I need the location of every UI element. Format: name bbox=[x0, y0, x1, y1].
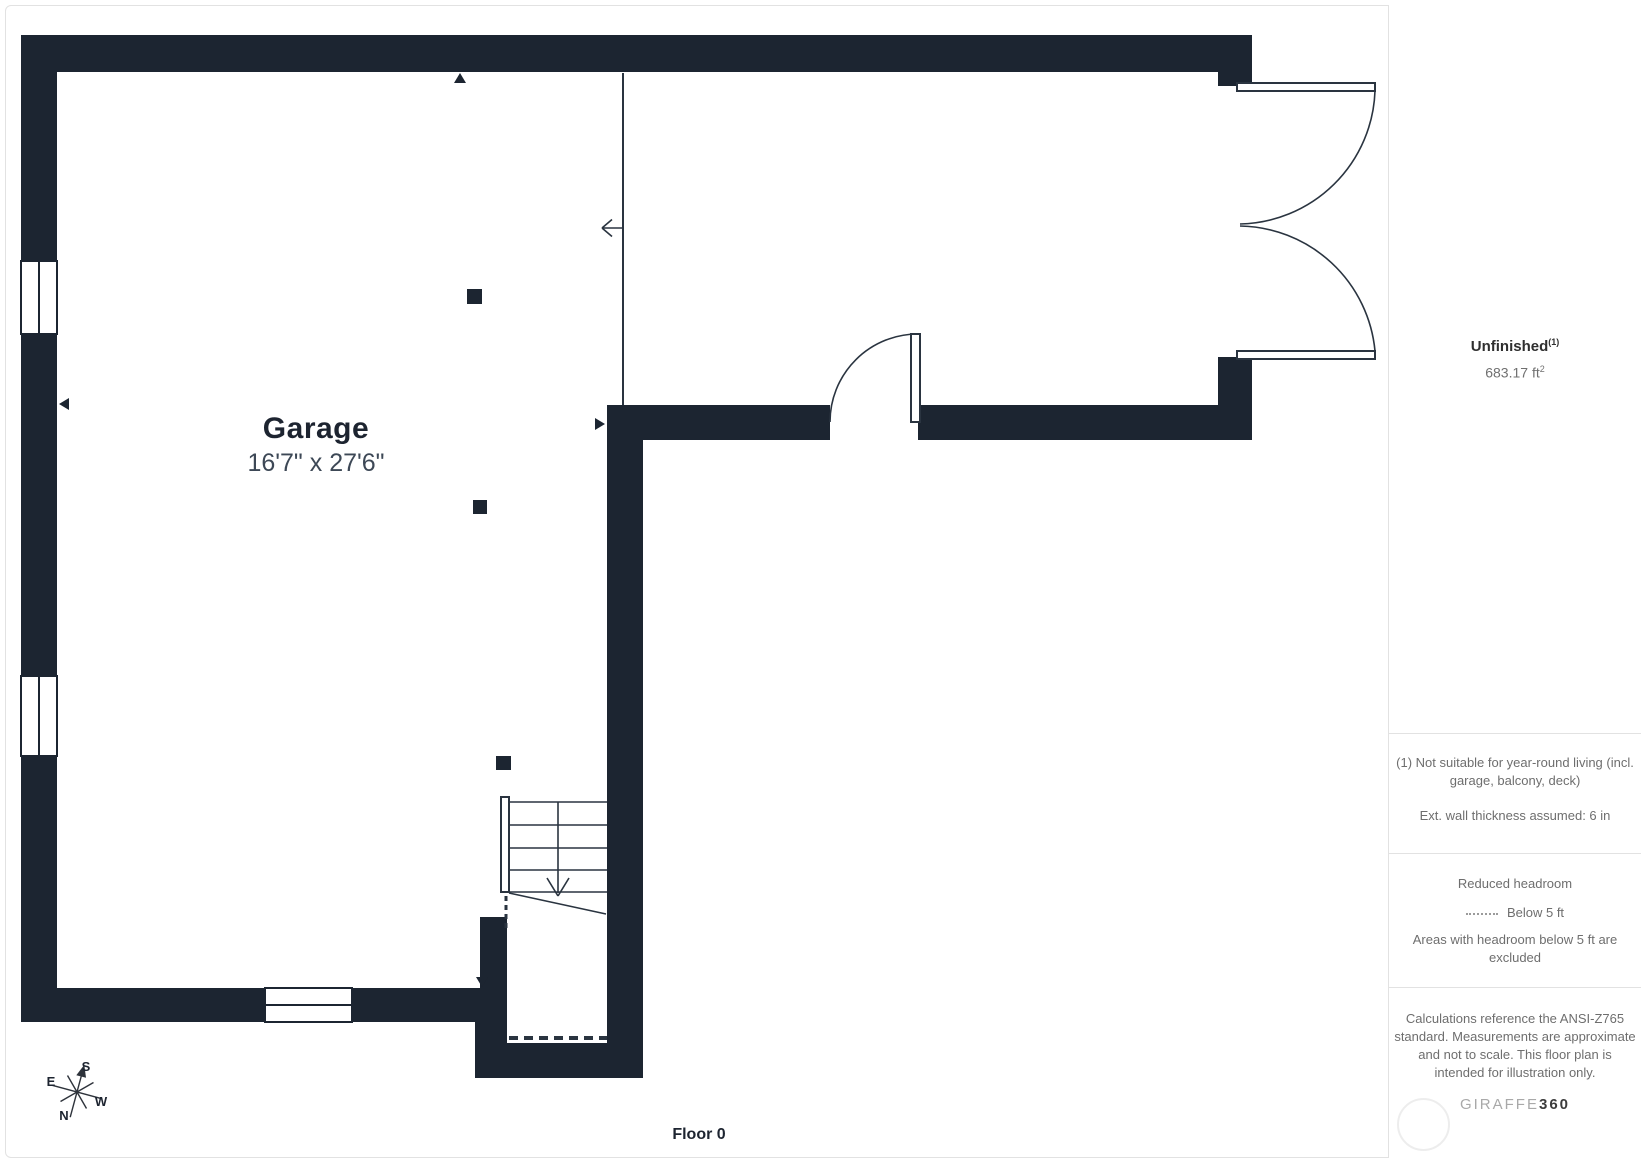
area-name: Unfinished(1) bbox=[1471, 337, 1560, 355]
stair-stringer bbox=[501, 797, 509, 892]
area-value-text: 683.17 ft bbox=[1485, 365, 1540, 381]
compass-south-label: S bbox=[79, 1059, 93, 1074]
giraffe360-logo: GIRAFFE360 bbox=[1389, 1096, 1641, 1113]
window-west-1 bbox=[21, 261, 57, 334]
floor-label: Floor 0 bbox=[672, 1126, 725, 1144]
wall-interior-vertical bbox=[607, 405, 643, 1078]
door-swing-arc-top bbox=[1240, 91, 1375, 224]
stair-direction-arrow bbox=[547, 878, 558, 896]
logo-text-giraffe: GIRAFFE bbox=[1460, 1096, 1539, 1113]
door-leaf bbox=[911, 334, 920, 422]
dotted-line-legend-icon bbox=[1466, 913, 1498, 915]
area-value-exponent: 2 bbox=[1540, 364, 1545, 374]
area-name-text: Unfinished bbox=[1471, 338, 1549, 355]
disclaimer-text: Calculations reference the ANSI-Z765 sta… bbox=[1393, 1010, 1637, 1082]
stair-direction-arrow bbox=[558, 878, 569, 896]
wall-thickness-note: Ext. wall thickness assumed: 6 in bbox=[1389, 807, 1641, 825]
disclaimer-section: Calculations reference the ANSI-Z765 sta… bbox=[1389, 987, 1641, 1158]
wall-south-garage bbox=[21, 988, 475, 1022]
headroom-legend-label: Below 5 ft bbox=[1507, 905, 1564, 920]
room-dimensions: 16'7" x 27'6" bbox=[247, 449, 384, 478]
post bbox=[473, 500, 487, 514]
double-door-east bbox=[1237, 83, 1375, 359]
headroom-description: Areas with headroom below 5 ft are exclu… bbox=[1394, 931, 1636, 967]
post bbox=[496, 756, 511, 770]
compass-east-label: E bbox=[44, 1074, 58, 1089]
compass-north-label: N bbox=[57, 1108, 71, 1123]
door-leaf-top bbox=[1237, 83, 1375, 91]
footnotes-section: (1) Not suitable for year-round living (… bbox=[1389, 733, 1641, 853]
wall-north bbox=[21, 35, 1252, 72]
wall-west bbox=[21, 35, 57, 1022]
window-west-2 bbox=[21, 676, 57, 756]
area-value: 683.17 ft2 bbox=[1485, 364, 1545, 381]
interior-door bbox=[830, 334, 920, 422]
door-leaf-bottom bbox=[1237, 351, 1375, 359]
staircase bbox=[501, 797, 607, 1038]
area-footnote-marker: (1) bbox=[1548, 337, 1559, 347]
measure-marker-left bbox=[59, 398, 69, 410]
wall-stair-bay-left-lower bbox=[475, 988, 507, 1048]
door-swing-arc-bottom bbox=[1240, 226, 1375, 351]
area-summary-section: Unfinished(1) 683.17 ft2 bbox=[1389, 5, 1641, 733]
wall-interior-south-b bbox=[918, 405, 1252, 440]
window-south bbox=[265, 988, 352, 1022]
logo-text-360: 360 bbox=[1539, 1096, 1570, 1113]
measure-marker-right bbox=[595, 418, 605, 430]
headroom-legend: Below 5 ft bbox=[1389, 904, 1641, 922]
door-swing-arc bbox=[830, 334, 918, 422]
measure-marker-up bbox=[454, 73, 466, 83]
compass-west-label: W bbox=[94, 1094, 108, 1109]
room-label: Garage bbox=[263, 412, 369, 446]
entrance-arrow-icon bbox=[602, 220, 622, 237]
wall-stair-bay-bottom bbox=[475, 1043, 643, 1078]
footnote-text: (1) Not suitable for year-round living (… bbox=[1394, 754, 1636, 790]
floor-plan-page: Garage 16'7" x 27'6" Floor 0 S E W N Unf… bbox=[0, 0, 1647, 1165]
headroom-section: Reduced headroom Below 5 ft Areas with h… bbox=[1389, 853, 1641, 987]
headroom-title: Reduced headroom bbox=[1389, 875, 1641, 893]
info-sidebar: Unfinished(1) 683.17 ft2 (1) Not suitabl… bbox=[1388, 5, 1641, 1158]
post bbox=[467, 289, 482, 304]
